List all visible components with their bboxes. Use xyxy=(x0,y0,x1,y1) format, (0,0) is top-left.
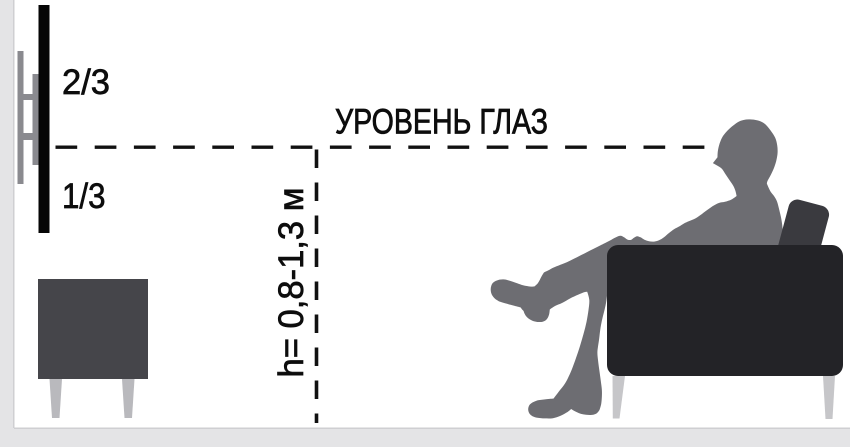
svg-text:УРОВЕНЬ ГЛАЗ: УРОВЕНЬ ГЛАЗ xyxy=(335,102,548,142)
svg-text:1/3: 1/3 xyxy=(62,177,106,216)
svg-text:2/3: 2/3 xyxy=(62,63,110,102)
svg-text:h= 0,8-1,3 м: h= 0,8-1,3 м xyxy=(272,188,311,378)
